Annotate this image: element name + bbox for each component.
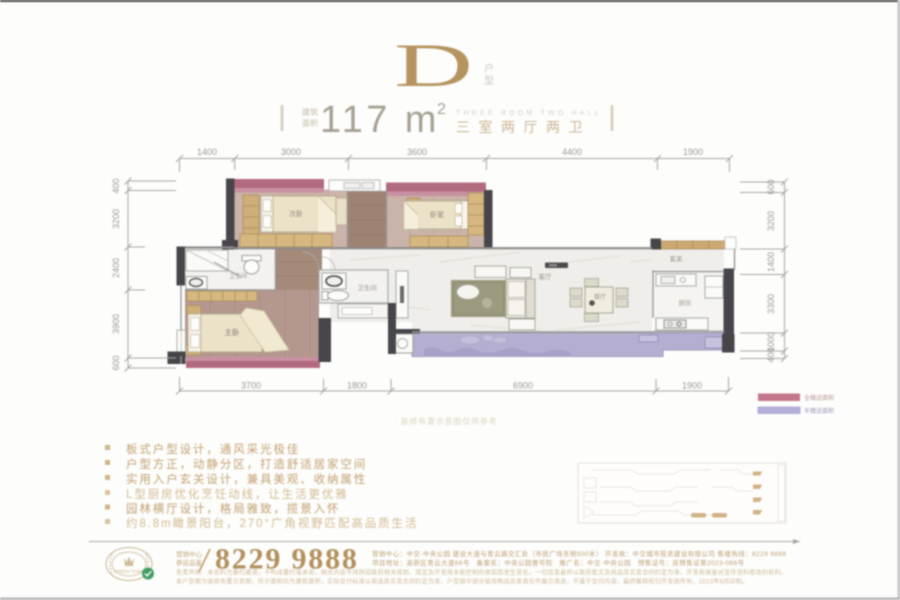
svg-text:· 装修布置示意图仅供参考 ·: · 装修布置示意图仅供参考 ·	[394, 416, 504, 426]
svg-text:卫生间: 卫生间	[357, 283, 377, 292]
svg-text:600: 600	[111, 355, 121, 370]
svg-text:厨房: 厨房	[679, 298, 692, 307]
svg-text:三室两厅两卫: 三室两厅两卫	[456, 119, 591, 135]
svg-text:400: 400	[766, 347, 776, 362]
svg-text:本户型图为装修布置示意图，所示面积均为建筑面积，实际交付标准: 本户型图为装修布置示意图，所示面积均为建筑面积，实际交付标准以商品房买卖合同约定…	[176, 578, 749, 586]
svg-text:4400: 4400	[562, 147, 582, 157]
svg-text:3000: 3000	[281, 147, 301, 157]
svg-text:玄关: 玄关	[670, 254, 684, 263]
svg-text:次卧: 次卧	[289, 209, 303, 218]
svg-text:3300: 3300	[766, 294, 776, 314]
svg-text:2: 2	[437, 101, 446, 118]
svg-text:板式户型设计，通风采光极佳: 板式户型设计，通风采光极佳	[126, 442, 300, 456]
svg-text:600: 600	[766, 179, 776, 194]
svg-text:D: D	[394, 33, 473, 100]
svg-text:1900: 1900	[683, 147, 703, 157]
svg-text:400: 400	[111, 178, 121, 193]
svg-text:2400: 2400	[111, 258, 121, 278]
svg-text:营销中心: 营销中心	[176, 550, 203, 559]
svg-text:客厅: 客厅	[539, 272, 553, 281]
svg-text:1800: 1800	[347, 381, 367, 391]
svg-text:项目地址：高新区青云大道66号 备案名：中央公园壹号院 推广: 项目地址：高新区青云大道66号 备案名：中央公园壹号院 推广名：中交·中央公园 …	[372, 558, 745, 567]
svg-text:型: 型	[484, 74, 494, 87]
svg-text:营销中心：中交·中央公园 建设大道与青云路交汇处（市民广场东: 营销中心：中交·中央公园 建设大道与青云路交汇处（市民广场东侧500米） 开发商…	[372, 549, 786, 558]
svg-text:6900: 6900	[513, 381, 533, 391]
svg-text:主卧: 主卧	[225, 327, 240, 337]
svg-text:3200: 3200	[766, 211, 776, 231]
svg-text:L型厨房优化烹饪动线，让生活更优雅: L型厨房优化烹饪动线，让生活更优雅	[126, 487, 349, 501]
svg-text:实用入户玄关设计，兼具美观、收纳属性: 实用入户玄关设计，兼具美观、收纳属性	[126, 472, 367, 486]
svg-text:建筑: 建筑	[302, 107, 318, 117]
svg-text:1900: 1900	[682, 381, 702, 391]
svg-text:面积: 面积	[302, 118, 318, 128]
svg-text:卫生间: 卫生间	[229, 272, 247, 280]
svg-text:117 m: 117 m	[320, 99, 440, 141]
svg-text:3700: 3700	[241, 381, 261, 391]
svg-text:THREE ROOM TWO HALL: THREE ROOM TWO HALL	[456, 110, 602, 117]
svg-text:恭迎品鉴: 恭迎品鉴	[176, 558, 203, 567]
svg-text:园林横厅设计，格局雅致，揽景入怀: 园林横厅设计，格局雅致，揽景入怀	[126, 502, 340, 516]
svg-text:3200: 3200	[111, 209, 121, 229]
svg-text:半赠送面积: 半赠送面积	[804, 407, 834, 415]
svg-text:3600: 3600	[407, 147, 427, 157]
svg-text:1400: 1400	[197, 147, 217, 157]
svg-text:餐厅: 餐厅	[594, 293, 606, 301]
svg-text:1400: 1400	[766, 252, 776, 272]
svg-text:卧室: 卧室	[430, 210, 444, 219]
svg-text:3900: 3900	[111, 314, 121, 334]
svg-text:GREEN TOWN: GREEN TOWN	[114, 569, 145, 574]
svg-text:全赠送面积: 全赠送面积	[804, 394, 834, 402]
svg-text:户型方正，动静分区，打造舒适居家空间: 户型方正，动静分区，打造舒适居家空间	[126, 457, 367, 471]
svg-text:约8.8m瞰景阳台，270°广角视野匹配高品质生活: 约8.8m瞰景阳台，270°广角视野匹配高品质生活	[126, 516, 418, 530]
svg-text:户: 户	[484, 62, 494, 75]
svg-text:免责声明：本资料为要约邀请，不构成要约或承诺，相关内容不排除: 免责声明：本资料为要约邀请，不构成要约或承诺，相关内容不排除因政府相关规划、规定…	[176, 569, 787, 577]
